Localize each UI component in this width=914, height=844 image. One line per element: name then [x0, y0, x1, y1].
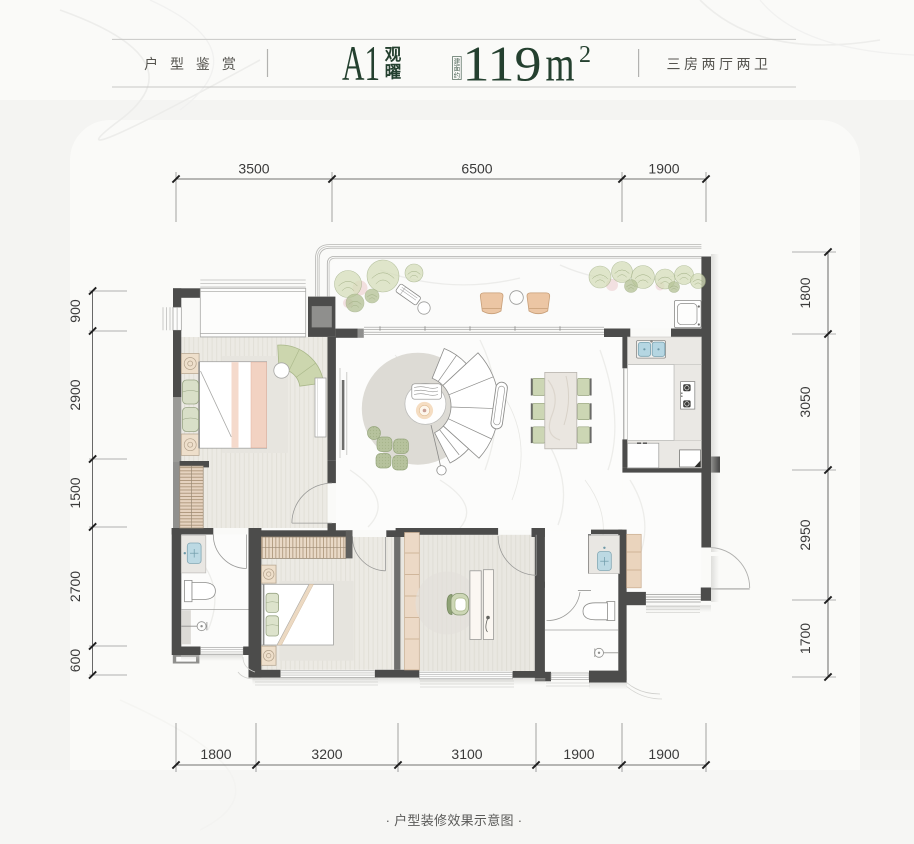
- svg-text:建: 建: [454, 57, 461, 66]
- svg-text:曜: 曜: [385, 63, 402, 82]
- svg-text:约: 约: [454, 71, 460, 80]
- svg-text:119: 119: [463, 36, 542, 92]
- svg-text:3500: 3500: [238, 161, 269, 177]
- svg-text:观: 观: [385, 45, 402, 64]
- svg-text:1900: 1900: [648, 161, 679, 177]
- svg-text:1800: 1800: [797, 277, 813, 308]
- svg-text:三房两厅两卫: 三房两厅两卫: [667, 56, 772, 72]
- svg-text:· 户型装修效果示意图 ·: · 户型装修效果示意图 ·: [386, 813, 523, 828]
- svg-text:2900: 2900: [67, 379, 83, 410]
- svg-text:3050: 3050: [797, 386, 813, 417]
- svg-text:面: 面: [454, 65, 461, 73]
- svg-text:2700: 2700: [67, 571, 83, 602]
- svg-text:户 型 鉴 赏: 户 型 鉴 赏: [144, 56, 240, 72]
- svg-text:2950: 2950: [797, 519, 813, 550]
- svg-text:1900: 1900: [648, 746, 679, 762]
- svg-text:3200: 3200: [311, 746, 342, 762]
- svg-text:2: 2: [579, 42, 591, 68]
- svg-text:900: 900: [67, 299, 83, 323]
- svg-text:A1: A1: [342, 35, 380, 91]
- svg-text:600: 600: [67, 649, 83, 673]
- svg-text:m: m: [546, 36, 575, 92]
- svg-text:6500: 6500: [461, 161, 492, 177]
- svg-text:1800: 1800: [200, 746, 231, 762]
- svg-text:1700: 1700: [797, 623, 813, 654]
- svg-text:1500: 1500: [67, 477, 83, 508]
- svg-text:1900: 1900: [563, 746, 594, 762]
- svg-text:3100: 3100: [451, 746, 482, 762]
